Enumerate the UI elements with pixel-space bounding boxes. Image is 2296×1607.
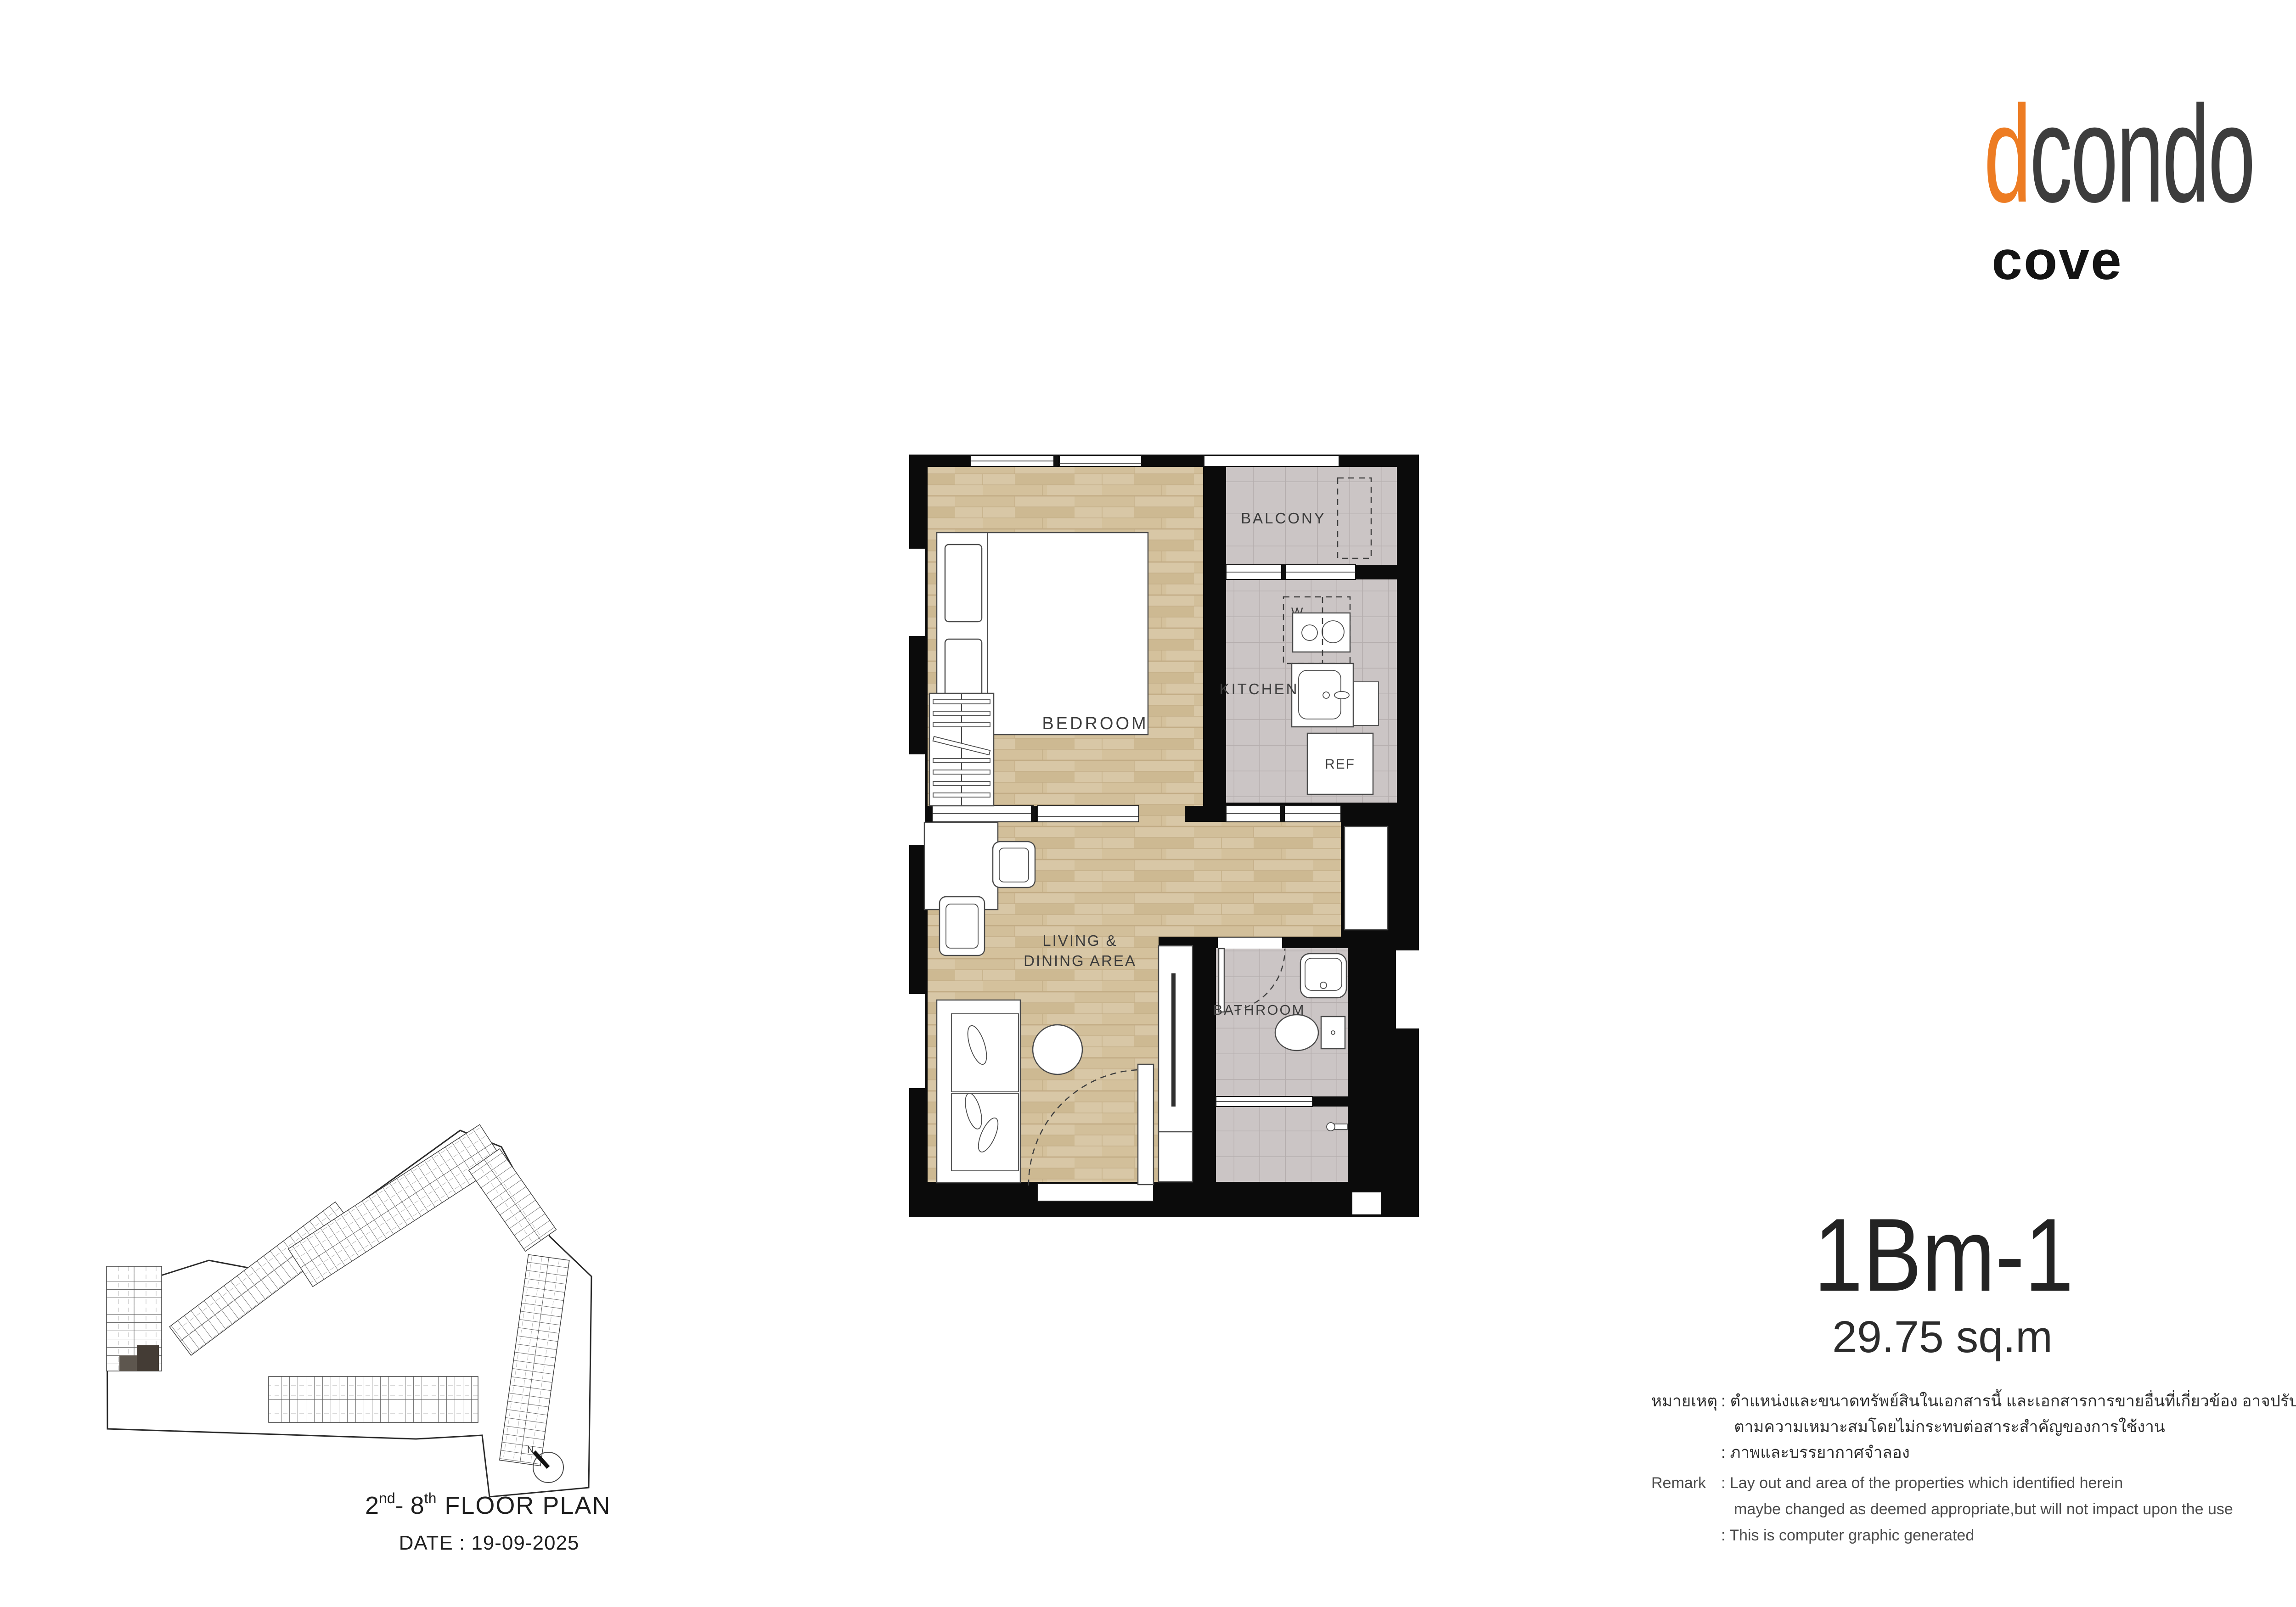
bedroom-living-opening [1139,806,1185,822]
sofa [937,1000,1020,1183]
tv-panel [1159,946,1193,1182]
remark-thai-line3: : ภาพและบรรยากาศจำลอง [1721,1440,2230,1466]
brand-logo: dcondo cove [1901,85,2213,288]
wall-recess [1352,1192,1381,1214]
floor-rest: FLOOR PLAN [445,1492,611,1519]
site-key-plan [103,1120,595,1501]
remarks-block: หมายเหตุ : ตำแหน่งและขนาดทรัพย์สินในเอกส… [1651,1388,2230,1549]
floor-plan-sheet: dcondo cove [0,0,2296,1607]
remark-thai-label: หมายเหตุ [1651,1388,1721,1414]
remark-en-line3: : This is computer graphic generated [1721,1523,2230,1549]
desk-chair [993,842,1035,888]
refrigerator: REF [1307,733,1373,794]
round-table [1033,1025,1082,1074]
remark-row-en-3: : This is computer graphic generated [1651,1523,2230,1549]
bathroom-label: BATHROOM [1213,1002,1306,1018]
floor-range-label: 2nd- 8thFLOOR PLAN [365,1491,579,1520]
shower-head [1327,1123,1347,1131]
bedroom-living-window [932,806,1139,822]
kitchen-sink [1292,663,1353,727]
shower-partition [1216,1096,1312,1107]
building-wing-south [269,1377,478,1422]
building-wing-northeast [469,1149,556,1251]
side-chair [940,897,985,955]
remark-row-thai-2: ตามความเหมาะสมโดยไม่กระทบต่อสาระสำคัญของ… [1651,1414,2230,1440]
bedroom-window-top [971,455,1142,466]
north-label: N [527,1445,534,1455]
unit-label-block: 1Bm-1 29.75 sq.m [1791,1203,2094,1360]
building-wing-west [107,1266,162,1371]
highlighted-unit-2 [119,1355,137,1371]
compass: N [526,1444,568,1487]
remark-row-thai-1: หมายเหตุ : ตำแหน่งและขนาดทรัพย์สินในเอกส… [1651,1388,2230,1414]
balcony-label: BALCONY [1241,510,1326,527]
brand-logo-cove: cove [1901,233,2213,288]
remark-thai-line2: ตามความเหมาะสมโดยไม่กระทบต่อสาระสำคัญของ… [1721,1414,2230,1440]
floor-sup2: th [424,1490,437,1506]
wall-recess [1396,950,1419,1028]
living-label-line1: LIVING & [1042,932,1117,949]
brand-letter-d: d [1984,77,2030,231]
shower-floor [1216,1107,1348,1182]
bedroom-label: BEDROOM [1042,714,1148,733]
brand-logo-dcondo: dcondo [1984,85,2254,223]
kitchen-label: KITCHEN [1220,680,1299,697]
highlighted-unit [137,1345,159,1371]
unit-name: 1Bm-1 [1814,1203,2074,1307]
remark-thai-line1: : ตำแหน่งและขนาดทรัพย์สินในเอกสารนี้ และ… [1721,1388,2296,1414]
balcony-railing [1204,455,1339,466]
unit-area: 29.75 sq.m [1791,1314,2094,1360]
remark-row-en-2: maybe changed as deemed appropriate,but … [1651,1496,2230,1523]
unit-floor-plan: W REF [909,455,1419,1217]
wardrobe [929,693,994,806]
wall-recess [909,549,925,636]
balcony-kitchen-window [1226,565,1356,579]
ref-label: REF [1325,757,1355,772]
toilet [1275,1015,1345,1051]
floor-base1: 2 [365,1492,379,1519]
remark-en-label: Remark [1651,1470,1721,1496]
date-label: DATE : 19-09-2025 [386,1532,592,1555]
kitchen-niche [1354,682,1379,725]
bathroom-sink [1300,954,1346,998]
remark-en-line1: : Lay out and area of the properties whi… [1721,1470,2230,1496]
remark-row-en-1: Remark : Lay out and area of the propert… [1651,1470,2230,1496]
floor-sup1: nd [379,1490,395,1506]
floor-base2: - 8 [395,1492,424,1519]
entry-cabinet [1345,826,1388,930]
remark-en-line2: maybe changed as deemed appropriate,but … [1721,1496,2233,1523]
wall-recess [909,754,925,845]
remark-row-thai-3: : ภาพและบรรยากาศจำลอง [1651,1440,2230,1466]
living-label-line2: DINING AREA [1024,952,1137,969]
wall-recess [909,994,925,1088]
building-wing-north [288,1124,504,1287]
brand-rest: condo [2030,77,2254,231]
corridor-window [1226,806,1341,822]
building-wing-east [500,1254,569,1466]
